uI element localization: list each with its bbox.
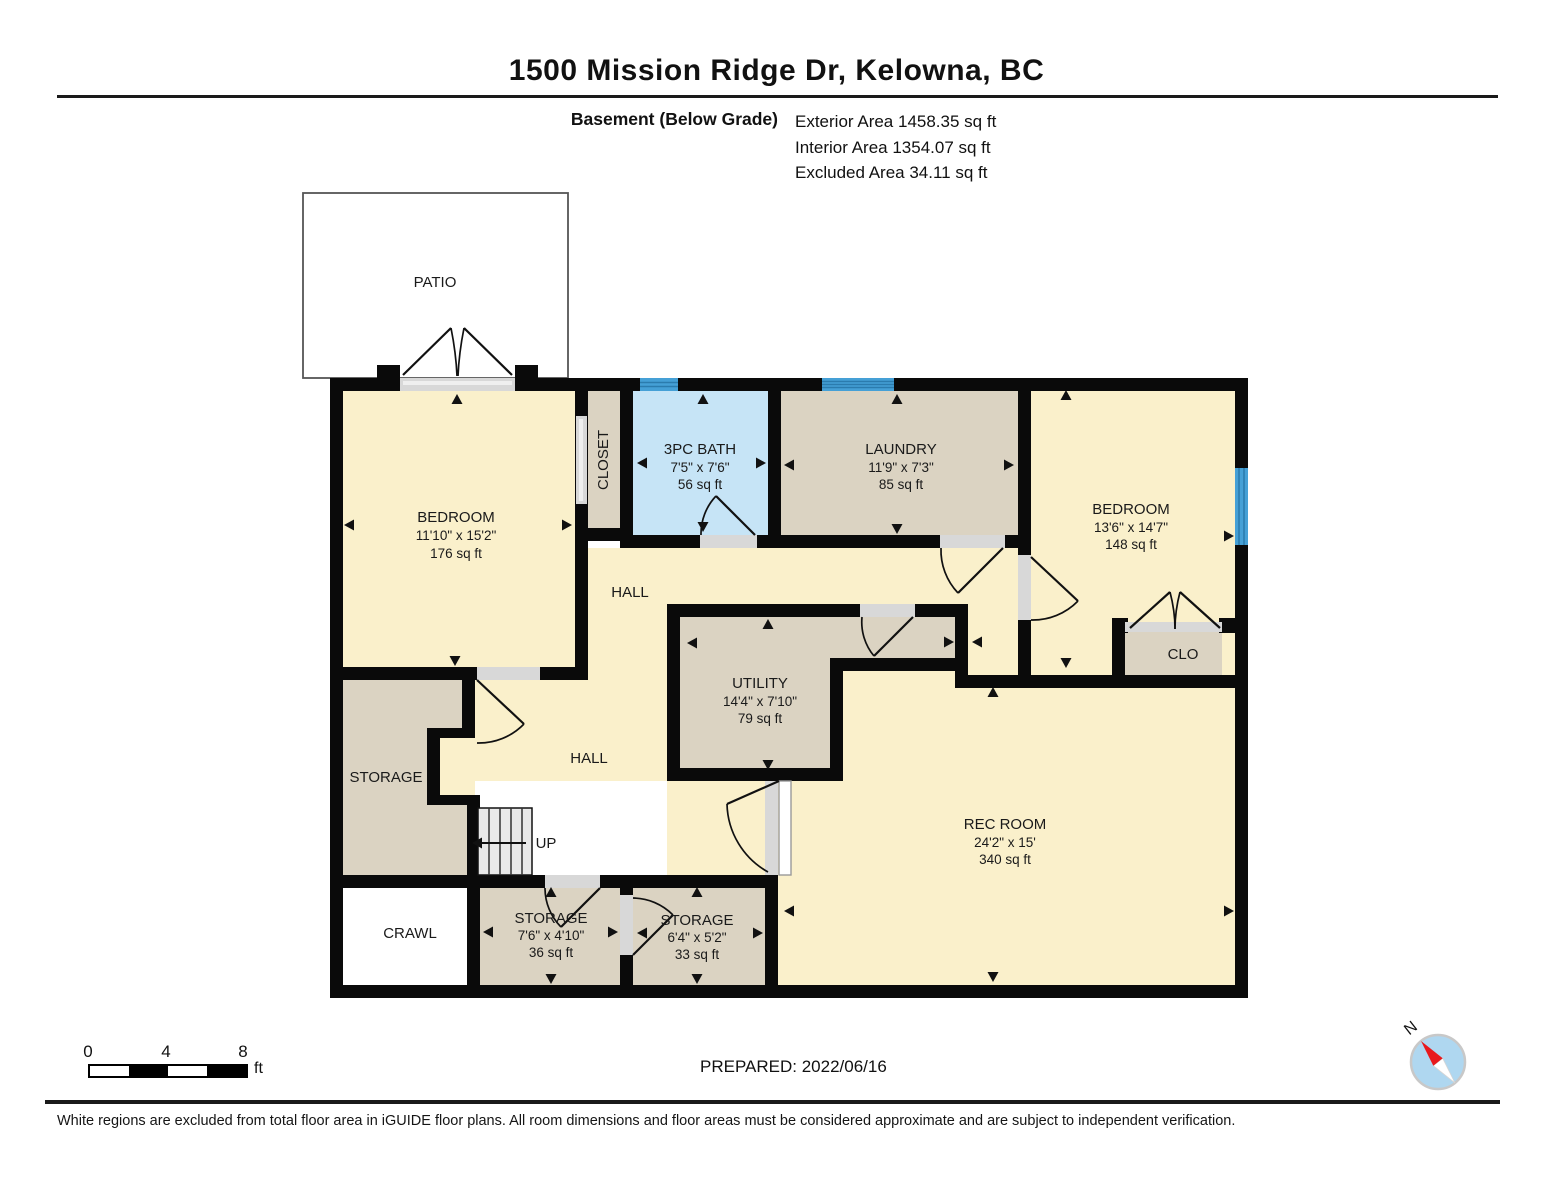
stairs [472,808,532,875]
bedroom-right-window [1235,468,1248,545]
crawl-label: CRAWL [383,925,437,942]
hall-lower-label: HALL [570,750,608,767]
footer-divider [45,1100,1500,1104]
clo-label: CLO [1168,646,1199,663]
floor-plan-page: 1500 Mission Ridge Dr, Kelowna, BC Basem… [0,0,1553,1200]
interior-area: Interior Area 1354.07 sq ft [795,135,996,161]
storage-right-label: STORAGE [660,912,733,929]
prepared-date: PREPARED: 2022/06/16 [700,1057,887,1077]
laundry-label: LAUNDRY [865,441,936,458]
compass-north-label: N [1401,1018,1421,1039]
compass-icon: N [1396,1012,1482,1100]
disclaimer-text: White regions are excluded from total fl… [57,1113,1517,1129]
bedroom-right-dims: 13'6" x 14'7" [1094,520,1168,535]
laundry-window [822,378,894,391]
bath-area: 56 sq ft [678,477,723,492]
bedroom-right-area: 148 sq ft [1105,537,1157,552]
storage-mid-area: 36 sq ft [529,945,574,960]
floor-label: Basement (Below Grade) [400,109,778,130]
utility-dims: 14'4" x 7'10" [723,694,797,709]
storage-right-area: 33 sq ft [675,947,720,962]
exterior-area: Exterior Area 1458.35 sq ft [795,109,996,135]
bedroom-left-label: BEDROOM [417,509,495,526]
scale-tick-0: 0 [78,1042,98,1062]
bedroom-right-label: BEDROOM [1092,501,1170,518]
bedroom-left-area: 176 sq ft [430,546,482,561]
page-title: 1500 Mission Ridge Dr, Kelowna, BC [0,54,1553,88]
laundry-dims: 11'9" x 7'3" [868,460,934,475]
utility-label: UTILITY [732,675,788,692]
bath-label: 3PC BATH [664,441,736,458]
floor-plan: PATIO BEDROOM 11'10" x 15'2" 176 sq ft C… [0,180,1553,1010]
scale-tick-4: 4 [156,1042,176,1062]
laundry-area: 85 sq ft [879,477,924,492]
stairs-up-label: UP [536,835,557,852]
storage-right-dims: 6'4" x 5'2" [667,930,726,945]
scale-tick-8: 8 [233,1042,253,1062]
scale-unit: ft [254,1060,263,1078]
storage-mid-label: STORAGE [514,910,587,927]
utility-area: 79 sq ft [738,711,783,726]
bedroom-left-dims: 11'10" x 15'2" [416,528,497,543]
hall-upper-label: HALL [611,584,649,601]
storage-mid-dims: 7'6" x 4'10" [518,928,585,943]
area-summary: Exterior Area 1458.35 sq ft Interior Are… [795,109,996,186]
scale-bar [88,1064,248,1078]
bath-dims: 7'5" x 7'6" [670,460,729,475]
rec-room-label: REC ROOM [964,816,1047,833]
rec-room-area: 340 sq ft [979,852,1031,867]
patio-label: PATIO [414,274,457,291]
rec-room-dims: 24'2" x 15' [974,835,1036,850]
bath-window [640,378,678,391]
storage-left-label: STORAGE [349,769,422,786]
closet-label: CLOSET [595,430,612,490]
header-divider [57,95,1498,98]
